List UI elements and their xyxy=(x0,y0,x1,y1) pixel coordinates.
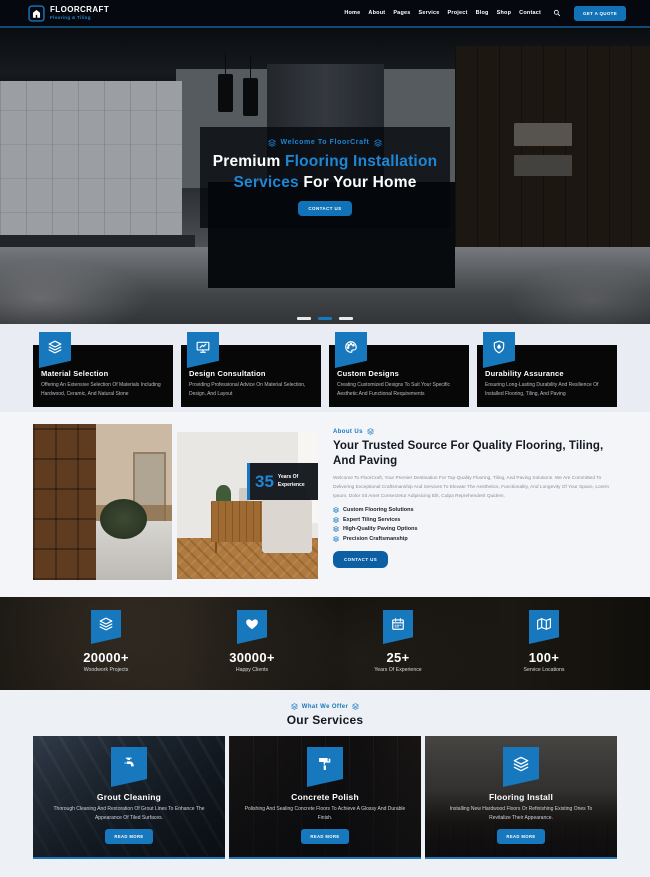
bullet-item: Expert Tiling Services xyxy=(333,517,620,523)
stat-service-locations: 100+ Service Locations xyxy=(471,597,617,690)
about-text-block: About Us Your Trusted Source For Quality… xyxy=(333,428,620,568)
palette-icon xyxy=(335,332,367,368)
experience-years: 35 xyxy=(255,472,274,492)
bullet-item: High-Quality Paving Options xyxy=(333,526,620,532)
about-bullets: Custom Flooring Solutions Expert Tiling … xyxy=(333,507,620,542)
service-title: Flooring Install xyxy=(489,792,553,802)
wood-door xyxy=(33,424,96,580)
layers-icon xyxy=(91,610,121,644)
feature-card-design-consultation[interactable]: Design Consultation Providing Profession… xyxy=(181,345,321,407)
layers-icon xyxy=(268,139,276,147)
stat-label: Years Of Experience xyxy=(374,667,421,673)
layers-icon xyxy=(352,703,359,710)
feature-title: Durability Assurance xyxy=(485,369,609,378)
service-title: Grout Cleaning xyxy=(97,792,161,802)
bullet-label: Custom Flooring Solutions xyxy=(343,507,414,513)
feature-card-durability-assurance[interactable]: Durability Assurance Ensuring Long-Lasti… xyxy=(477,345,617,407)
shield-icon xyxy=(483,332,515,368)
layers-icon xyxy=(291,703,298,710)
nav-item-blog[interactable]: Blog xyxy=(476,10,489,16)
hero-title-part: For Your Home xyxy=(303,174,416,191)
page: FLOORCRAFT Flooring & Tiling Home About … xyxy=(0,0,650,877)
features-section: Material Selection Offering An Extensive… xyxy=(0,324,650,412)
service-card-grout-cleaning[interactable]: Grout Cleaning Thorough Cleaning And Res… xyxy=(33,736,225,859)
stat-woodwork-projects: 20000+ Woodwork Projects xyxy=(33,597,179,690)
bullet-item: Precision Craftsmanship xyxy=(333,536,620,542)
hero-welcome-row: Welcome To FloorCraft xyxy=(268,139,383,147)
brand-tagline: Flooring & Tiling xyxy=(50,15,109,20)
layers-icon xyxy=(503,747,539,787)
nav-item-contact[interactable]: Contact xyxy=(519,10,541,16)
brand-logo[interactable]: FLOORCRAFT Flooring & Tiling xyxy=(28,5,109,22)
map-icon xyxy=(529,610,559,644)
hero-title-part: Services xyxy=(233,174,298,191)
cabinet-leg xyxy=(215,542,217,552)
stats-section: 20000+ Woodwork Projects 30000+ Happy Cl… xyxy=(0,597,650,690)
layers-icon xyxy=(333,507,339,513)
hero-title-part: Flooring Installation xyxy=(285,153,437,170)
stat-value: 100+ xyxy=(529,650,559,665)
feature-desc: Ensuring Long-Lasting Durability And Res… xyxy=(485,381,609,399)
hero-section: Welcome To FloorCraft Premium Flooring I… xyxy=(0,28,650,324)
feature-card-material-selection[interactable]: Material Selection Offering An Extensive… xyxy=(33,345,173,407)
feature-title: Material Selection xyxy=(41,369,165,378)
nav-item-pages[interactable]: Pages xyxy=(393,10,410,16)
hero-content-box: Welcome To FloorCraft Premium Flooring I… xyxy=(200,127,450,228)
plant xyxy=(100,499,147,540)
slider-dot-1[interactable] xyxy=(297,317,311,320)
about-image-livingroom xyxy=(177,432,318,579)
services-kicker: What We Offer xyxy=(291,703,359,710)
read-more-button[interactable]: READ MORE xyxy=(105,829,152,844)
plant xyxy=(216,485,230,503)
layers-icon xyxy=(39,332,71,368)
stat-label: Happy Clients xyxy=(236,667,268,673)
bullet-label: Precision Craftsmanship xyxy=(343,536,408,542)
nav-item-shop[interactable]: Shop xyxy=(497,10,512,16)
layers-icon xyxy=(333,526,339,532)
stat-value: 20000+ xyxy=(83,650,129,665)
feature-desc: Creating Customized Designs To Suit Your… xyxy=(337,381,461,399)
slider-dot-2-active[interactable] xyxy=(318,317,332,320)
heart-icon xyxy=(237,610,267,644)
nav-item-about[interactable]: About xyxy=(368,10,385,16)
main-nav: Home About Pages Service Project Blog Sh… xyxy=(344,6,626,21)
service-card-flooring-install[interactable]: Flooring Install Installing New Hardwood… xyxy=(425,736,617,859)
bullet-label: Expert Tiling Services xyxy=(343,517,400,523)
services-section: What We Offer Our Services Grout Cleanin… xyxy=(0,690,650,877)
read-more-button[interactable]: READ MORE xyxy=(497,829,544,844)
about-heading: Your Trusted Source For Quality Flooring… xyxy=(333,439,620,469)
experience-label: Years Of Experience xyxy=(278,474,308,489)
stat-label: Service Locations xyxy=(524,667,565,673)
hero-welcome-text: Welcome To FloorCraft xyxy=(281,139,370,146)
service-desc: Installing New Hardwood Floors Or Refini… xyxy=(425,805,617,823)
layers-icon xyxy=(333,536,339,542)
about-kicker-text: About Us xyxy=(333,429,363,435)
feature-card-custom-designs[interactable]: Custom Designs Creating Customized Desig… xyxy=(329,345,469,407)
nav-item-service[interactable]: Service xyxy=(419,10,440,16)
armchair xyxy=(262,497,313,553)
house-logo-icon xyxy=(28,5,45,22)
about-kicker: About Us xyxy=(333,428,620,435)
experience-badge: 35 Years Of Experience xyxy=(247,463,318,500)
nav-item-project[interactable]: Project xyxy=(448,10,468,16)
layers-icon xyxy=(374,139,382,147)
services-kicker-text: What We Offer xyxy=(302,704,348,710)
feature-title: Custom Designs xyxy=(337,369,461,378)
faucet-icon xyxy=(111,747,147,787)
about-paragraph: Welcome To FloorCraft, Your Premier Dest… xyxy=(333,475,620,502)
paint-roller-icon xyxy=(307,747,343,787)
contact-us-button[interactable]: CONTACT US xyxy=(333,551,388,568)
about-section: 35 Years Of Experience About Us Your Tru… xyxy=(0,412,650,597)
wood-cabinet xyxy=(211,501,267,542)
hero-slider-dots xyxy=(0,317,650,320)
stat-value: 30000+ xyxy=(229,650,275,665)
calendar-icon xyxy=(383,610,413,644)
feature-title: Design Consultation xyxy=(189,369,313,378)
header: FLOORCRAFT Flooring & Tiling Home About … xyxy=(0,0,650,28)
search-icon[interactable] xyxy=(553,9,561,17)
service-desc: Polishing And Sealing Concrete Floors To… xyxy=(229,805,421,823)
presentation-icon xyxy=(187,332,219,368)
brand-name: FLOORCRAFT xyxy=(50,6,109,15)
nav-item-home[interactable]: Home xyxy=(344,10,360,16)
hero-title: Premium Flooring Installation Services F… xyxy=(213,152,438,194)
stat-value: 25+ xyxy=(387,650,410,665)
layers-icon xyxy=(333,517,339,523)
services-heading: Our Services xyxy=(287,713,363,727)
stat-years-experience: 25+ Years Of Experience xyxy=(325,597,471,690)
read-more-button[interactable]: READ MORE xyxy=(301,829,348,844)
about-image-door xyxy=(33,424,172,580)
stat-happy-clients: 30000+ Happy Clients xyxy=(179,597,325,690)
service-card-concrete-polish[interactable]: Concrete Polish Polishing And Sealing Co… xyxy=(229,736,421,859)
contact-us-button[interactable]: CONTACT US xyxy=(298,201,351,216)
hero-title-part: Premium xyxy=(213,153,281,170)
stat-label: Woodwork Projects xyxy=(84,667,129,673)
slider-dot-3[interactable] xyxy=(339,317,353,320)
feature-desc: Providing Professional Advice On Materia… xyxy=(189,381,313,399)
bullet-item: Custom Flooring Solutions xyxy=(333,507,620,513)
service-desc: Thorough Cleaning And Restoration Of Gro… xyxy=(33,805,225,823)
get-a-quote-button[interactable]: GET A QUOTE xyxy=(574,6,626,21)
bullet-label: High-Quality Paving Options xyxy=(343,526,418,532)
feature-desc: Offering An Extensive Selection Of Mater… xyxy=(41,381,165,399)
layers-icon xyxy=(367,428,374,435)
service-title: Concrete Polish xyxy=(291,792,359,802)
